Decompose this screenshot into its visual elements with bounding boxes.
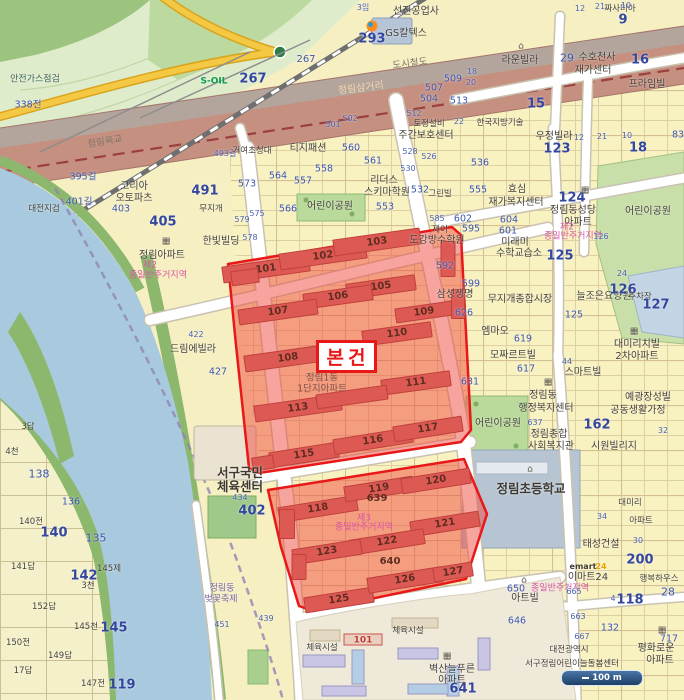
subject-marker: 본건 bbox=[316, 340, 377, 373]
scale-text: 100 m bbox=[592, 673, 622, 683]
scale-tick bbox=[582, 677, 589, 679]
gs-station-building bbox=[372, 18, 412, 44]
gs-caltex-logo bbox=[367, 21, 378, 32]
map-canvas[interactable]: 1011021031051061071081091101111131151161… bbox=[0, 0, 684, 700]
scale-bar: 100 m bbox=[561, 670, 643, 686]
